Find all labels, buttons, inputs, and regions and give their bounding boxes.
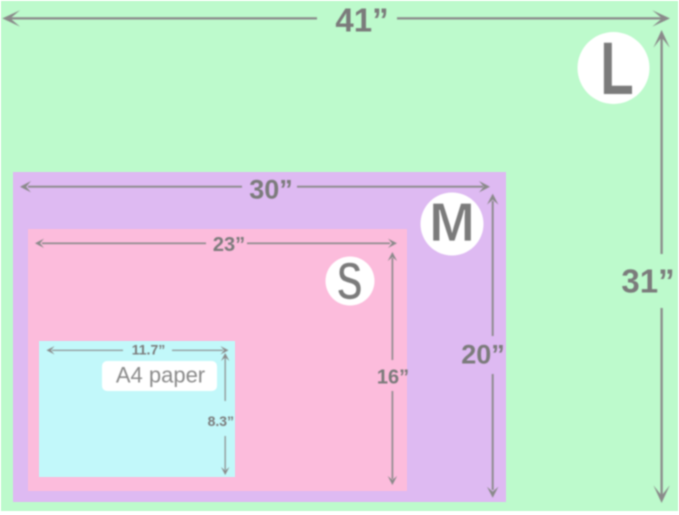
svg-text:41”: 41”	[335, 2, 388, 39]
svg-text:11.7”: 11.7”	[132, 341, 165, 357]
svg-text:23”: 23”	[213, 234, 245, 256]
svg-text:S: S	[337, 252, 363, 313]
svg-text:8.3”: 8.3”	[208, 413, 234, 429]
svg-text:16”: 16”	[377, 367, 409, 389]
svg-text:A4 paper: A4 paper	[116, 363, 205, 388]
svg-text:30”: 30”	[249, 174, 293, 204]
svg-text:M: M	[429, 191, 475, 253]
svg-text:20”: 20”	[461, 339, 505, 369]
svg-text:31”: 31”	[621, 263, 674, 300]
svg-text:L: L	[600, 27, 633, 110]
